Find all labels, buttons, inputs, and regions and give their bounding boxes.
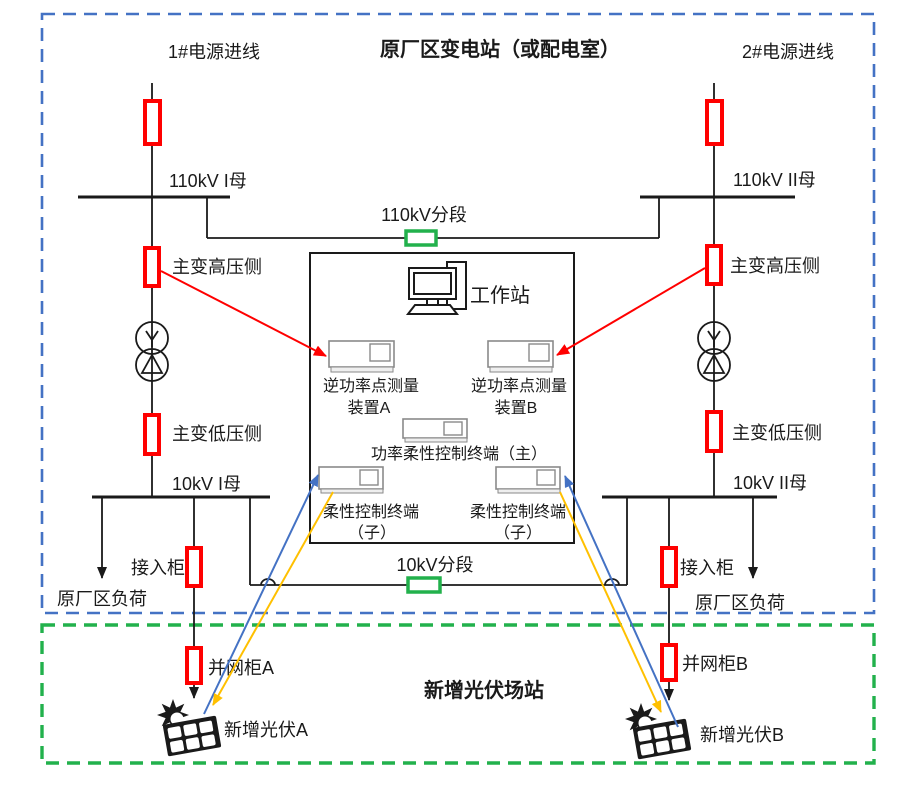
- left-incoming-breaker-icon: [145, 101, 160, 144]
- master-terminal-label: 功率柔性控制终端（主）: [371, 445, 547, 463]
- grid-cabinet-a-breaker-icon: [187, 648, 201, 683]
- left-hv-breaker-icon: [145, 248, 159, 286]
- meter-a-label-line1: 逆功率点测量: [323, 377, 419, 395]
- diagram-canvas: 原厂区变电站（或配电室） 新增光伏场站: [0, 0, 917, 785]
- meter-device-b-icon: [488, 341, 553, 372]
- left-load-label: 原厂区负荷: [57, 589, 147, 609]
- right-access-cabinet-breaker-icon: [662, 548, 676, 586]
- left-hv-label: 主变高压侧: [172, 257, 262, 277]
- section-10kv-label: 10kV分段: [396, 555, 473, 575]
- pv-b-label: 新增光伏B: [700, 725, 784, 745]
- left-lv-breaker-icon: [145, 415, 159, 454]
- bus-10kv-1-label: 10kV I母: [172, 474, 241, 494]
- child-terminal-left-label2: （子）: [348, 524, 396, 542]
- orange-control-arrow-right: [560, 492, 661, 712]
- child-terminal-right-icon: [496, 467, 560, 493]
- grid-cabinet-b-breaker-icon: [662, 645, 676, 680]
- pv-a-icon: [157, 699, 221, 756]
- right-hv-breaker-icon: [707, 246, 721, 284]
- substation-title: 原厂区变电站（或配电室）: [380, 37, 620, 61]
- workstation-icon: [408, 262, 466, 314]
- single-line-diagram: 原厂区变电站（或配电室） 新增光伏场站: [0, 0, 917, 785]
- workstation-label: 工作站: [470, 284, 530, 307]
- right-incoming-breaker-icon: [707, 101, 722, 144]
- meter-b-label-line1: 逆功率点测量: [471, 377, 567, 395]
- bus-110kv-2-label: 110kV II母: [733, 170, 816, 190]
- section-breaker-10kv-icon: [408, 578, 440, 592]
- child-terminal-left-label1: 柔性控制终端: [323, 503, 419, 521]
- right-access-cabinet-label: 接入柜: [680, 558, 734, 578]
- right-lv-breaker-icon: [707, 412, 721, 451]
- left-access-cabinet-breaker-icon: [187, 548, 201, 586]
- pv-a-label: 新增光伏A: [224, 720, 308, 740]
- child-terminal-right-label2: （子）: [494, 524, 542, 542]
- meter-a-label-line2: 装置A: [348, 399, 391, 417]
- meter-b-label-line2: 装置B: [495, 399, 538, 417]
- meter-device-a-icon: [329, 341, 394, 372]
- right-hv-label: 主变高压侧: [730, 256, 820, 276]
- section-110kv-label: 110kV分段: [381, 205, 467, 225]
- blue-feedback-arrow-left: [204, 475, 318, 714]
- right-lv-label: 主变低压侧: [732, 423, 822, 443]
- left-lv-label: 主变低压侧: [172, 424, 262, 444]
- master-terminal-icon: [403, 419, 467, 442]
- grid-cabinet-b-label: 并网柜B: [682, 654, 748, 674]
- red-measure-arrow-right: [557, 268, 705, 355]
- blue-feedback-arrow-right: [565, 476, 678, 727]
- right-incoming-label: 2#电源进线: [742, 42, 834, 62]
- child-terminal-right-label1: 柔性控制终端: [470, 503, 566, 521]
- child-terminal-left-icon: [319, 467, 383, 493]
- red-measure-arrow-left: [161, 271, 326, 356]
- pv-station-title: 新增光伏场站: [424, 678, 544, 702]
- pv-b-icon: [625, 703, 691, 759]
- left-incoming-label: 1#电源进线: [168, 42, 260, 62]
- bus-110kv-1-label: 110kV I母: [169, 171, 247, 191]
- section-breaker-110kv-icon: [406, 231, 436, 245]
- bus-10kv-2-label: 10kV II母: [733, 473, 807, 493]
- left-access-cabinet-label: 接入柜: [131, 558, 185, 578]
- grid-cabinet-a-label: 并网柜A: [208, 658, 274, 678]
- right-load-label: 原厂区负荷: [695, 593, 785, 613]
